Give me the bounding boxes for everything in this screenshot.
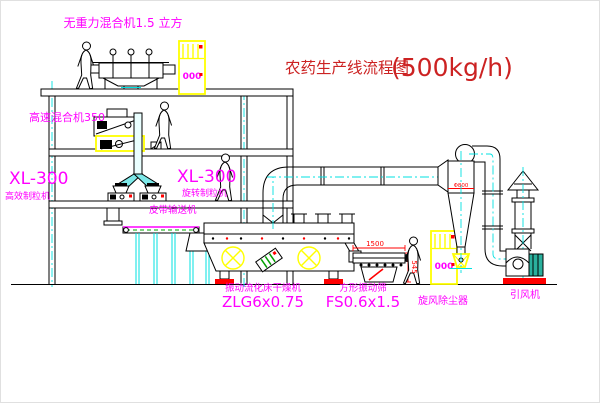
control-cabinet-ground: [431, 231, 457, 284]
label-granulator-left-model: XL-300: [9, 169, 68, 189]
control-cabinet-top: [179, 41, 205, 94]
induced-draft-fan: [503, 249, 546, 284]
process-flow-diagram: 000: [0, 0, 600, 403]
diagram-canvas: 000: [1, 1, 600, 404]
label-granulator-right-name: 旋转制粒机: [182, 187, 227, 199]
dimension-cyclone: Φ800: [454, 183, 469, 189]
label-high-speed-mixer: 高速混合机350: [29, 110, 105, 124]
label-gravity-mixer: 无重力混合机1.5 立方: [64, 15, 183, 30]
worker-second-floor: [155, 102, 172, 149]
worker-top-floor: [77, 42, 94, 89]
discharge-chute: [104, 208, 122, 225]
label-belt-conveyor: 皮带输送机: [149, 204, 197, 216]
exhaust-duct: [263, 167, 453, 229]
label-cyclone: 旋风除尘器: [418, 294, 468, 307]
label-granulator-right-model: XL-300: [177, 167, 236, 187]
granulator-right: [140, 183, 166, 201]
fluid-bed-dryer: [186, 214, 361, 284]
label-fan: 引风机: [510, 288, 540, 301]
label-sieve-model: FS0.6x1.5: [326, 293, 400, 311]
label-granulator-left-name: 高效制粒机: [5, 190, 50, 202]
gravity-mixer: [88, 49, 175, 89]
diagram-capacity: (500kg/h): [391, 53, 513, 82]
dimension-sieve-length: 1500: [366, 240, 384, 248]
vibrating-sieve: [349, 245, 413, 282]
label-dryer-model: ZLG6x0.75: [222, 293, 304, 311]
duct-reducer: [438, 160, 448, 192]
dimension-sieve-height: 545: [410, 260, 418, 273]
